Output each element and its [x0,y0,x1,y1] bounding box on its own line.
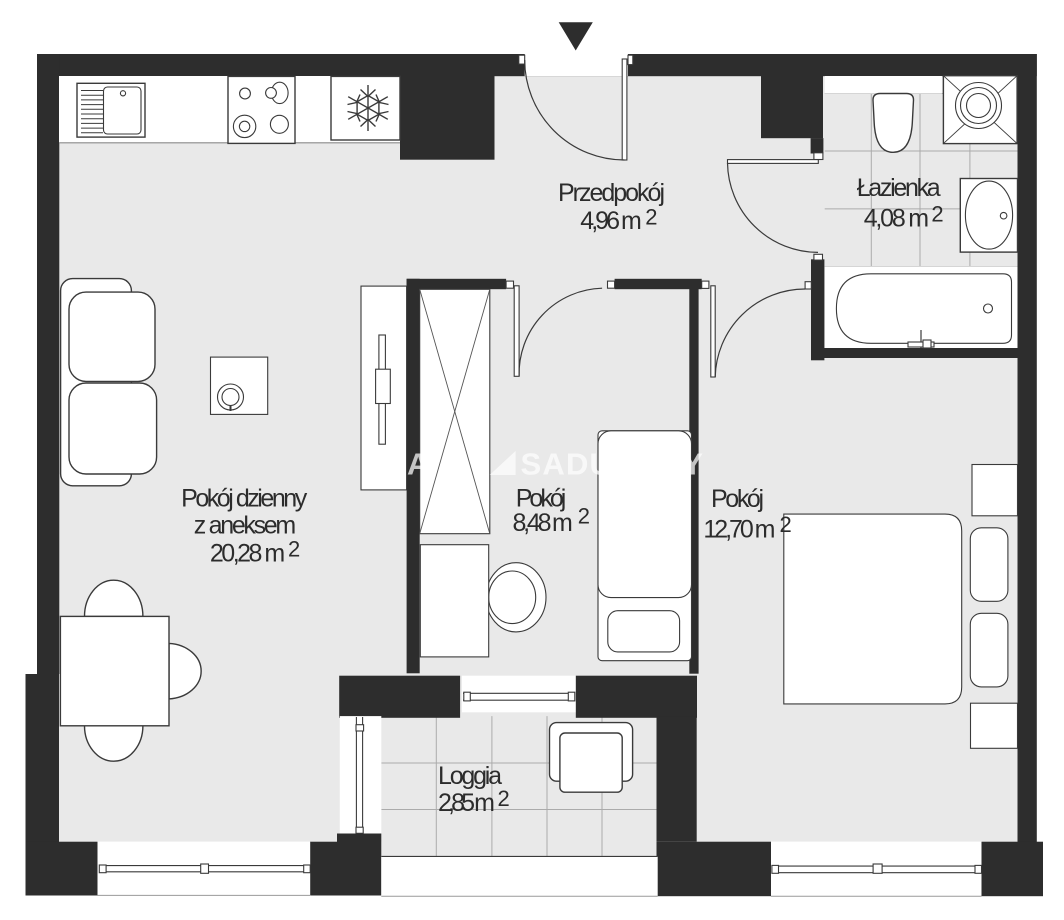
svg-text:Łazienka: Łazienka [857,174,941,202]
svg-text:8,48 m: 8,48 m [513,509,573,537]
svg-text:Loggia: Loggia [438,762,502,790]
svg-text:Pokój: Pokój [711,485,764,513]
svg-text:2,85 m: 2,85 m [438,789,495,817]
svg-text:2: 2 [288,537,300,562]
svg-text:SADURSCY: SADURSCY [521,447,705,482]
svg-text:2: 2 [645,205,657,230]
svg-text:A: A [407,447,429,482]
svg-text:2: 2 [578,504,590,529]
svg-text:20,28 m: 20,28 m [210,540,285,568]
svg-text:Przedpokój: Przedpokój [558,179,665,207]
svg-text:4,08 m: 4,08 m [864,204,929,232]
svg-text:2: 2 [498,786,510,811]
svg-text:Pokój dzienny: Pokój dzienny [181,484,308,512]
svg-text:12,70 m: 12,70 m [703,516,775,544]
svg-text:2: 2 [931,202,943,227]
svg-text:2: 2 [780,512,792,537]
svg-text:4,96 m: 4,96 m [580,207,642,235]
svg-text:z aneksem: z aneksem [194,511,296,539]
